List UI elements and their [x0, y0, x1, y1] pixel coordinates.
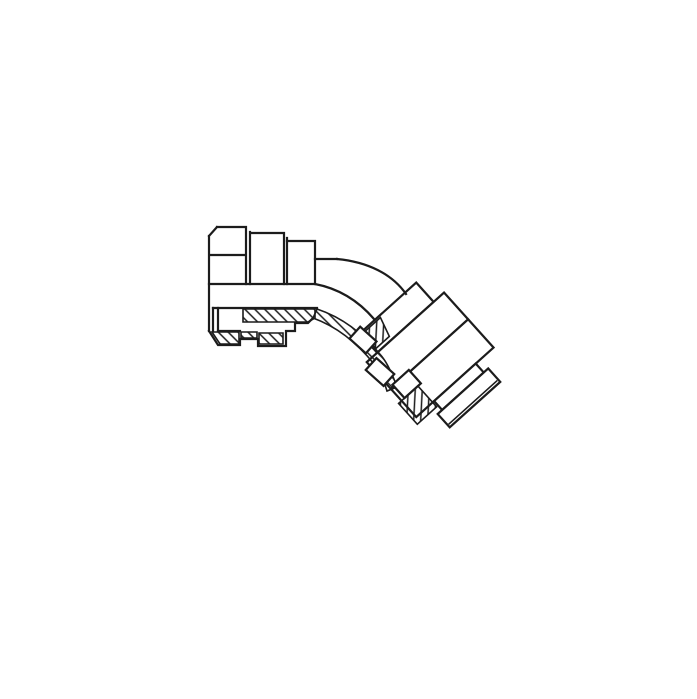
body-section-hatch	[243, 309, 315, 322]
left-nut-face-3	[287, 241, 315, 284]
fitting-drawing	[0, 0, 697, 699]
foot-hatch-b	[259, 333, 283, 344]
section-foot	[209, 309, 315, 346]
bend-outer-curve	[337, 259, 406, 294]
foot-hatch-c	[241, 332, 257, 338]
fitting-diagram	[0, 0, 697, 699]
nut-wall-lines	[213, 308, 218, 331]
left-nut-face-2	[252, 233, 287, 284]
